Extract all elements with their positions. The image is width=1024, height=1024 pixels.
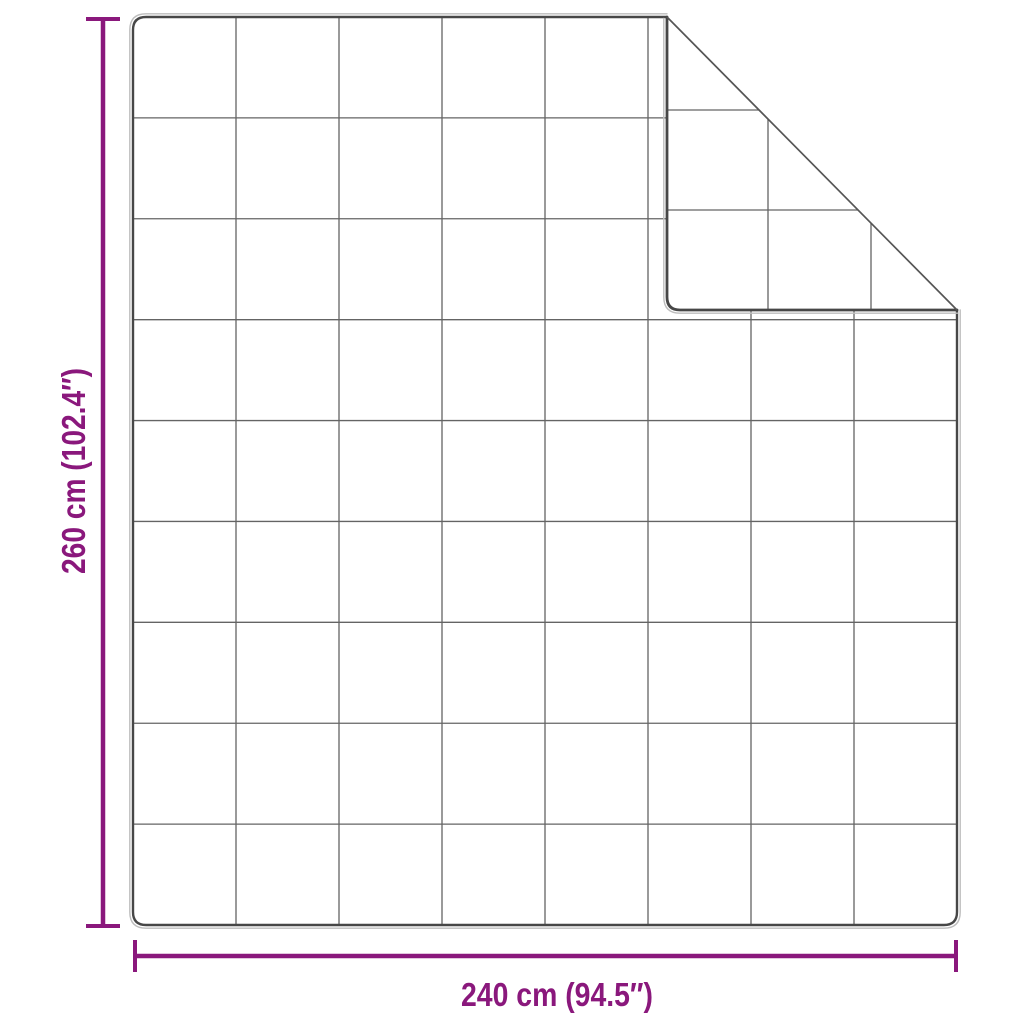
blanket-dimension-diagram: 260 cm (102.4″) 240 cm (94.5″) <box>0 0 1024 1024</box>
width-dimension-label: 240 cm (94.5″) <box>461 976 653 1013</box>
height-dimension-indicator: 260 cm (102.4″) <box>55 17 120 926</box>
height-dimension-label: 260 cm (102.4″) <box>55 368 92 574</box>
diagram-canvas: 260 cm (102.4″) 240 cm (94.5″) <box>0 0 1024 1024</box>
width-dimension-indicator: 240 cm (94.5″) <box>134 940 956 1013</box>
